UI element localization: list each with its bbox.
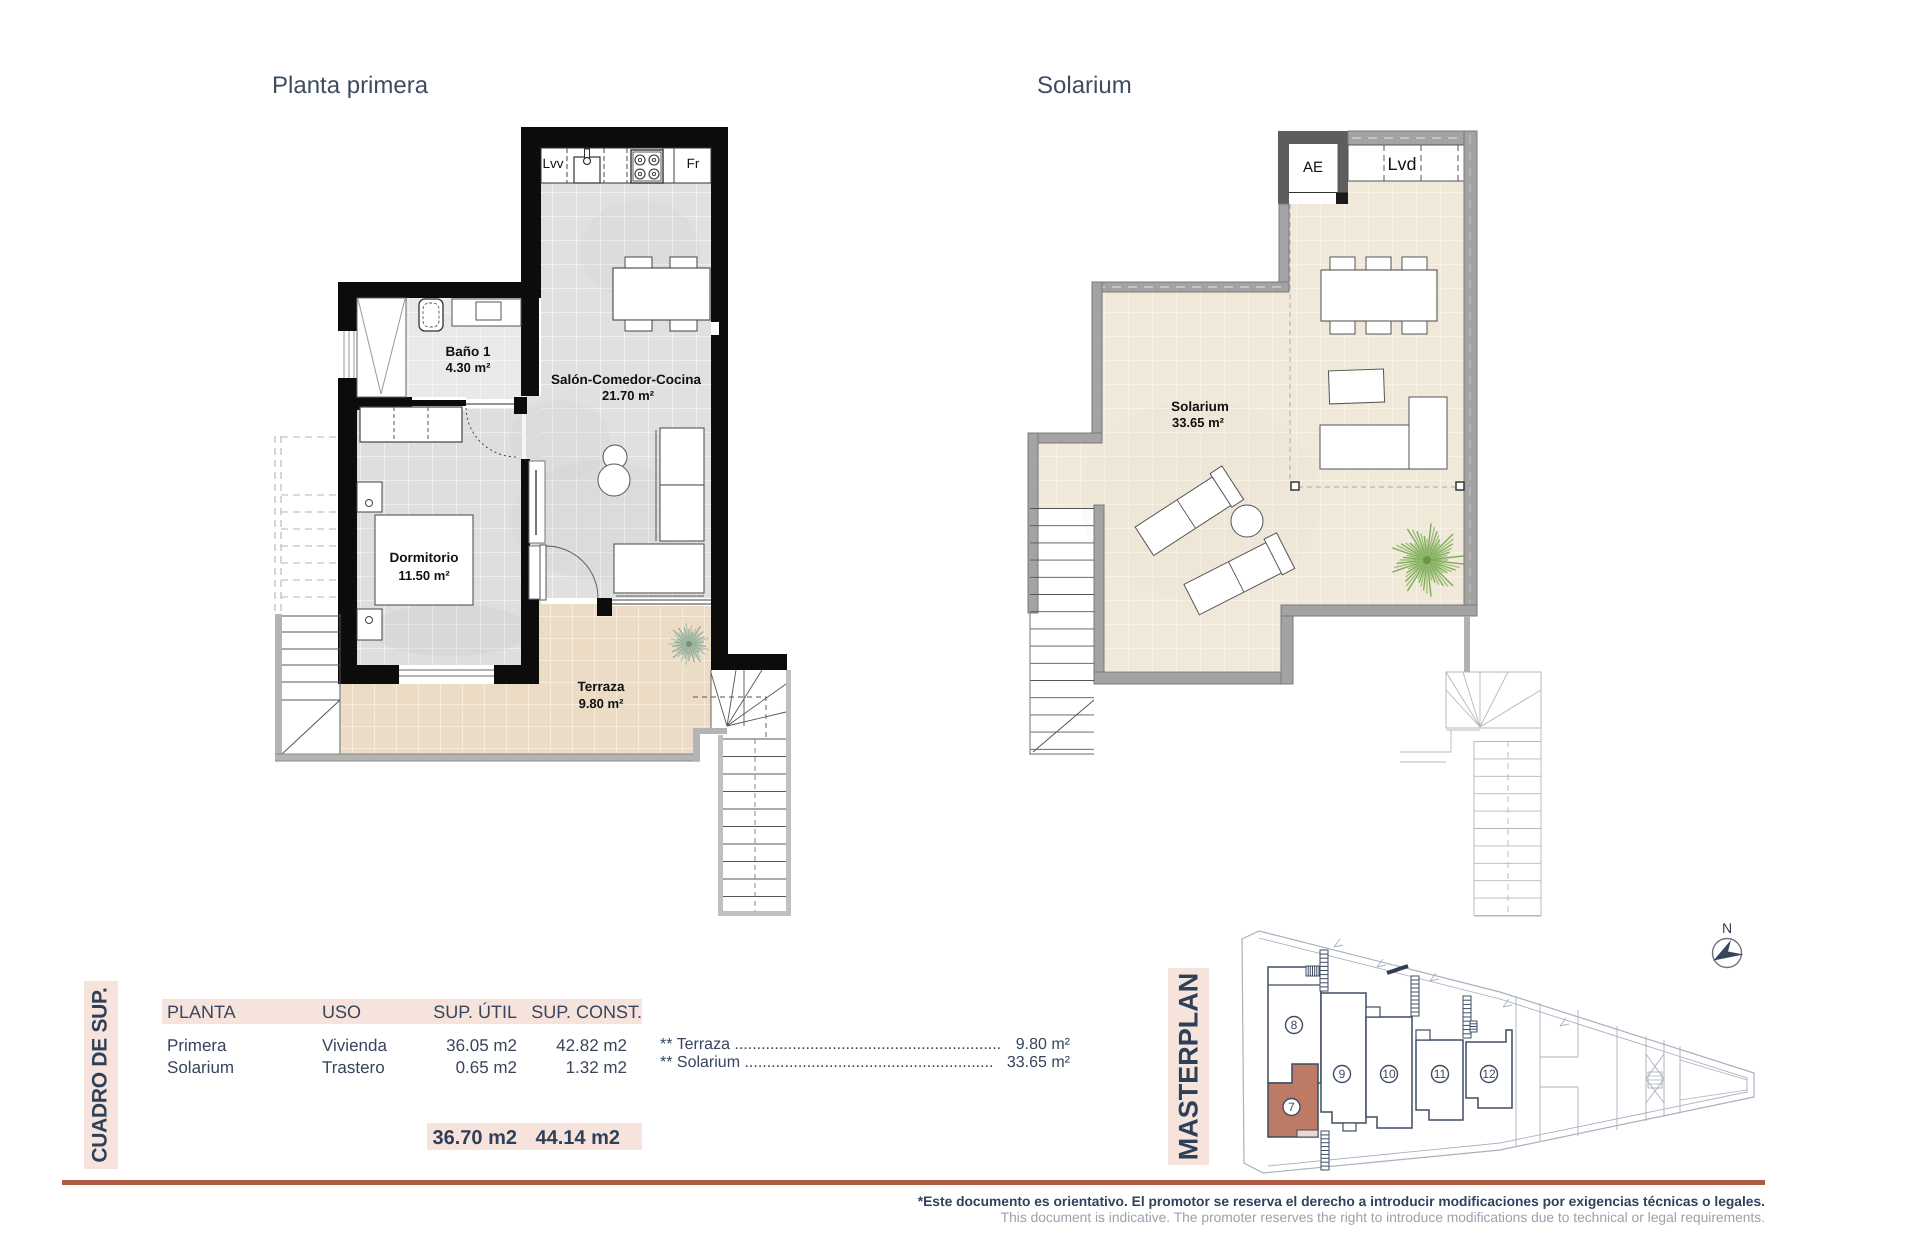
- svg-text:11: 11: [1434, 1067, 1447, 1081]
- svg-text:Lvd: Lvd: [1387, 154, 1416, 174]
- svg-text:Baño 1: Baño 1: [445, 344, 491, 359]
- svg-text:AE: AE: [1303, 159, 1323, 176]
- svg-text:8: 8: [1291, 1018, 1298, 1032]
- svg-text:Terraza: Terraza: [577, 679, 625, 694]
- svg-text:Solarium: Solarium: [1171, 399, 1229, 414]
- svg-text:10: 10: [1382, 1067, 1396, 1081]
- svg-text:12: 12: [1482, 1067, 1496, 1081]
- svg-text:Salón-Comedor-Cocina: Salón-Comedor-Cocina: [551, 372, 702, 387]
- svg-text:33.65 m²: 33.65 m²: [1172, 415, 1225, 430]
- svg-text:4.30 m²: 4.30 m²: [446, 360, 491, 375]
- svg-text:N: N: [1722, 920, 1732, 936]
- svg-text:9.80 m²: 9.80 m²: [579, 696, 624, 711]
- svg-text:11.50 m²: 11.50 m²: [398, 568, 450, 583]
- svg-text:Dormitorio: Dormitorio: [390, 550, 459, 565]
- svg-text:21.70 m²: 21.70 m²: [602, 388, 655, 403]
- svg-text:9: 9: [1339, 1067, 1346, 1081]
- svg-text:Lvv: Lvv: [542, 156, 563, 171]
- svg-text:Fr: Fr: [687, 156, 700, 171]
- svg-text:7: 7: [1288, 1100, 1295, 1114]
